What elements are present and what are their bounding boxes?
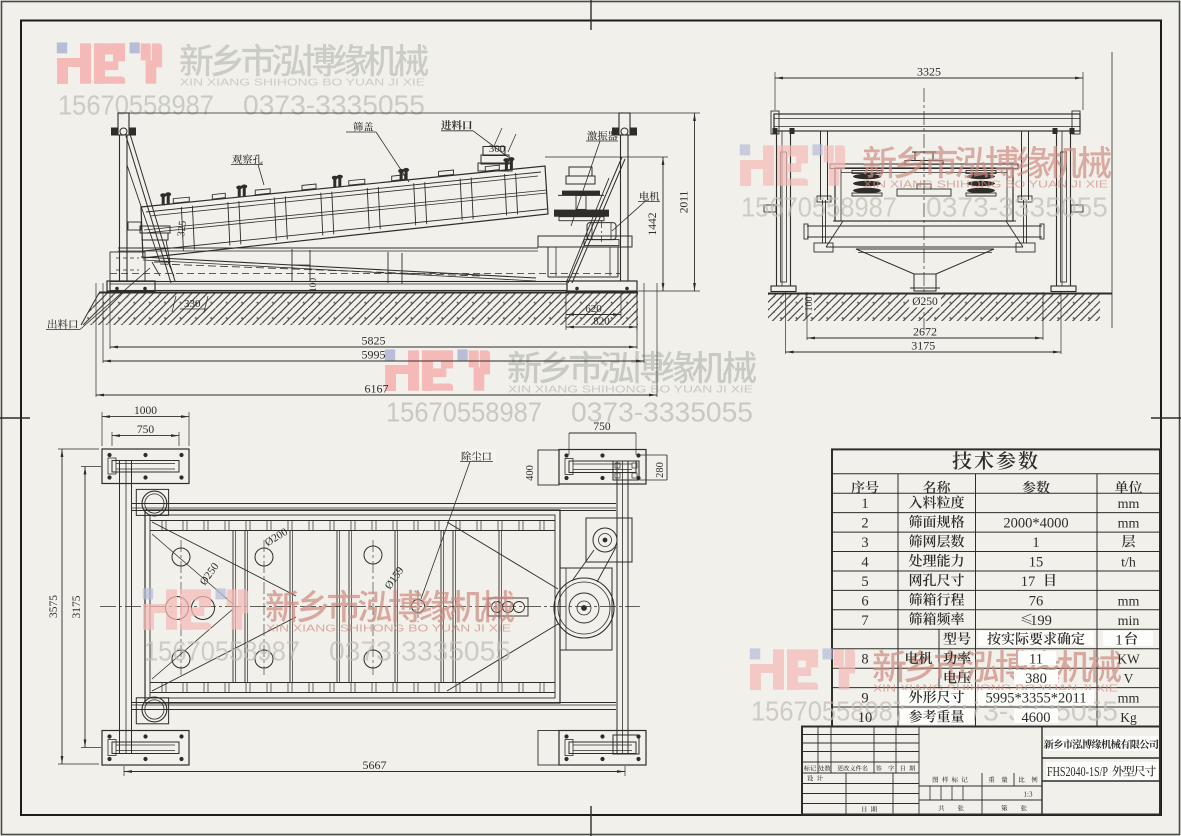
svg-text:3: 3: [861, 535, 868, 551]
svg-text:280: 280: [655, 462, 666, 478]
svg-text:XIN XIANG SHIHONG BO YUAN JI X: XIN XIANG SHIHONG BO YUAN JI XIE: [266, 624, 511, 635]
svg-text:min: min: [1118, 614, 1140, 629]
svg-text:8: 8: [861, 652, 868, 668]
svg-text:10: 10: [858, 710, 873, 726]
svg-text:V: V: [1124, 671, 1134, 686]
svg-text:0373-3335055: 0373-3335055: [329, 636, 511, 667]
svg-text:325: 325: [176, 220, 189, 237]
svg-text:t/h: t/h: [1121, 556, 1136, 571]
svg-text:15670558987: 15670558987: [741, 192, 897, 223]
svg-text:5995*3355*2011: 5995*3355*2011: [986, 691, 1087, 707]
svg-text:mm: mm: [1118, 517, 1140, 532]
svg-text:mm: mm: [1118, 692, 1140, 707]
svg-text:15670558987: 15670558987: [386, 397, 542, 428]
svg-text:mm: mm: [1118, 497, 1140, 512]
svg-text:XIN XIANG SHIHONG BO YUAN JI X: XIN XIANG SHIHONG BO YUAN JI XIE: [863, 180, 1108, 191]
svg-text:11: 11: [1029, 652, 1043, 668]
svg-text:4: 4: [861, 555, 869, 571]
svg-text:300: 300: [489, 143, 506, 155]
svg-text:0373-3335055: 0373-3335055: [243, 90, 425, 121]
svg-text:2672: 2672: [913, 325, 937, 339]
svg-text:3325: 3325: [917, 65, 941, 79]
svg-text:15670558987: 15670558987: [751, 696, 907, 727]
svg-text:1:3: 1:3: [1024, 791, 1033, 799]
svg-text:15670558987: 15670558987: [144, 636, 300, 667]
svg-text:76: 76: [1029, 593, 1044, 609]
svg-text:620: 620: [585, 303, 602, 315]
svg-text:6167: 6167: [365, 382, 389, 396]
svg-text:XIN XIANG SHIHONG BO YUAN JI X: XIN XIANG SHIHONG BO YUAN JI XIE: [508, 385, 753, 396]
svg-text:820: 820: [593, 316, 610, 328]
svg-text:1: 1: [1032, 535, 1039, 551]
svg-text:mm: mm: [1118, 594, 1140, 609]
svg-text:1000: 1000: [134, 405, 157, 417]
svg-text:1: 1: [861, 496, 868, 512]
svg-text:5995: 5995: [362, 348, 386, 362]
svg-text:Kg: Kg: [1120, 710, 1137, 725]
svg-text:3175: 3175: [71, 595, 83, 618]
svg-text:9: 9: [861, 691, 868, 707]
svg-text:5825: 5825: [362, 334, 386, 348]
svg-text:400: 400: [525, 465, 536, 481]
svg-text:Ø250: Ø250: [912, 296, 938, 308]
svg-text:2000*4000: 2000*4000: [1003, 516, 1068, 532]
svg-text:100: 100: [309, 278, 319, 293]
svg-text:FHS2040-1S/P: FHS2040-1S/P: [1047, 764, 1108, 779]
svg-text:199: 199: [1030, 613, 1052, 629]
svg-text:380: 380: [1025, 671, 1047, 687]
svg-text:XIN XIANG SHIHONG BO YUAN JI X: XIN XIANG SHIHONG BO YUAN JI XIE: [180, 78, 425, 89]
svg-text:4600: 4600: [1022, 710, 1051, 726]
svg-text:5667: 5667: [363, 758, 387, 772]
svg-text:15: 15: [1029, 555, 1044, 571]
svg-text:2011: 2011: [679, 190, 691, 213]
svg-text:17: 17: [1021, 574, 1036, 590]
svg-text:3575: 3575: [48, 595, 60, 618]
svg-text:15670558987: 15670558987: [58, 90, 214, 121]
svg-text:750: 750: [593, 421, 611, 433]
svg-text:2: 2: [861, 516, 868, 532]
svg-text:5: 5: [861, 574, 868, 590]
svg-text:3175: 3175: [911, 339, 935, 353]
svg-text:330: 330: [184, 298, 201, 310]
svg-text:1: 1: [1115, 632, 1122, 648]
svg-text:0373-3335055: 0373-3335055: [926, 192, 1108, 223]
svg-text:7: 7: [861, 613, 868, 629]
svg-text:750: 750: [137, 424, 155, 436]
svg-text:6: 6: [861, 593, 868, 609]
svg-text:1442: 1442: [647, 212, 659, 235]
svg-text:KW: KW: [1117, 652, 1140, 667]
